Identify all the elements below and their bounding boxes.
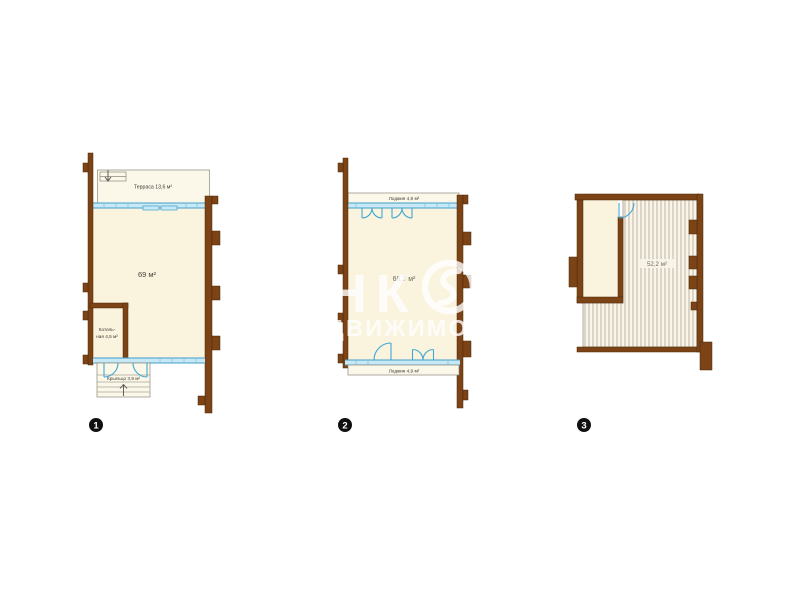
floor-plan-3: 52,2 м² 3 xyxy=(569,194,712,432)
terrace-label: Терраса 13,6 м² xyxy=(134,185,172,191)
plan-2-badge: 2 xyxy=(338,418,352,432)
window-band-bottom xyxy=(345,360,460,365)
loggia-top-label: Лоджия 4,9 м² xyxy=(389,196,420,201)
floorplans-canvas: Терраса 13,6 м² xyxy=(0,0,800,600)
watermark: ИНК М НЕДВИЖИМОСТЬ xyxy=(280,263,534,341)
sliding-door xyxy=(161,206,177,210)
sliding-door xyxy=(143,206,159,210)
left-post-wall xyxy=(83,153,93,365)
attic-area-label: 52,2 м² xyxy=(647,261,667,268)
porch: Крыльцо 3,9 м² xyxy=(97,363,150,397)
attic-room-floor xyxy=(583,200,618,297)
plan-1-badge: 1 xyxy=(89,418,103,432)
svg-text:2: 2 xyxy=(342,421,347,432)
svg-text:1: 1 xyxy=(93,421,99,432)
porch-label: Крыльцо 3,9 м² xyxy=(107,376,140,381)
floorplan-sheet: Терраса 13,6 м² xyxy=(0,0,800,600)
plan-3-badge: 3 xyxy=(577,418,591,432)
window-band-top xyxy=(345,203,460,208)
boiler-label-line1: Котель- xyxy=(99,327,116,332)
main-area-label: 69 м² xyxy=(138,270,157,279)
floor-plan-1: Терраса 13,6 м² xyxy=(83,153,220,432)
svg-text:3: 3 xyxy=(581,421,586,432)
window-band-bottom xyxy=(93,358,205,363)
loggia-bottom-label: Лоджия 4,9 м² xyxy=(389,368,420,373)
watermark-subtitle: НЕДВИЖИМОСТЬ xyxy=(290,315,523,341)
boiler-label-line2: ная 4,5 м² xyxy=(96,334,118,339)
